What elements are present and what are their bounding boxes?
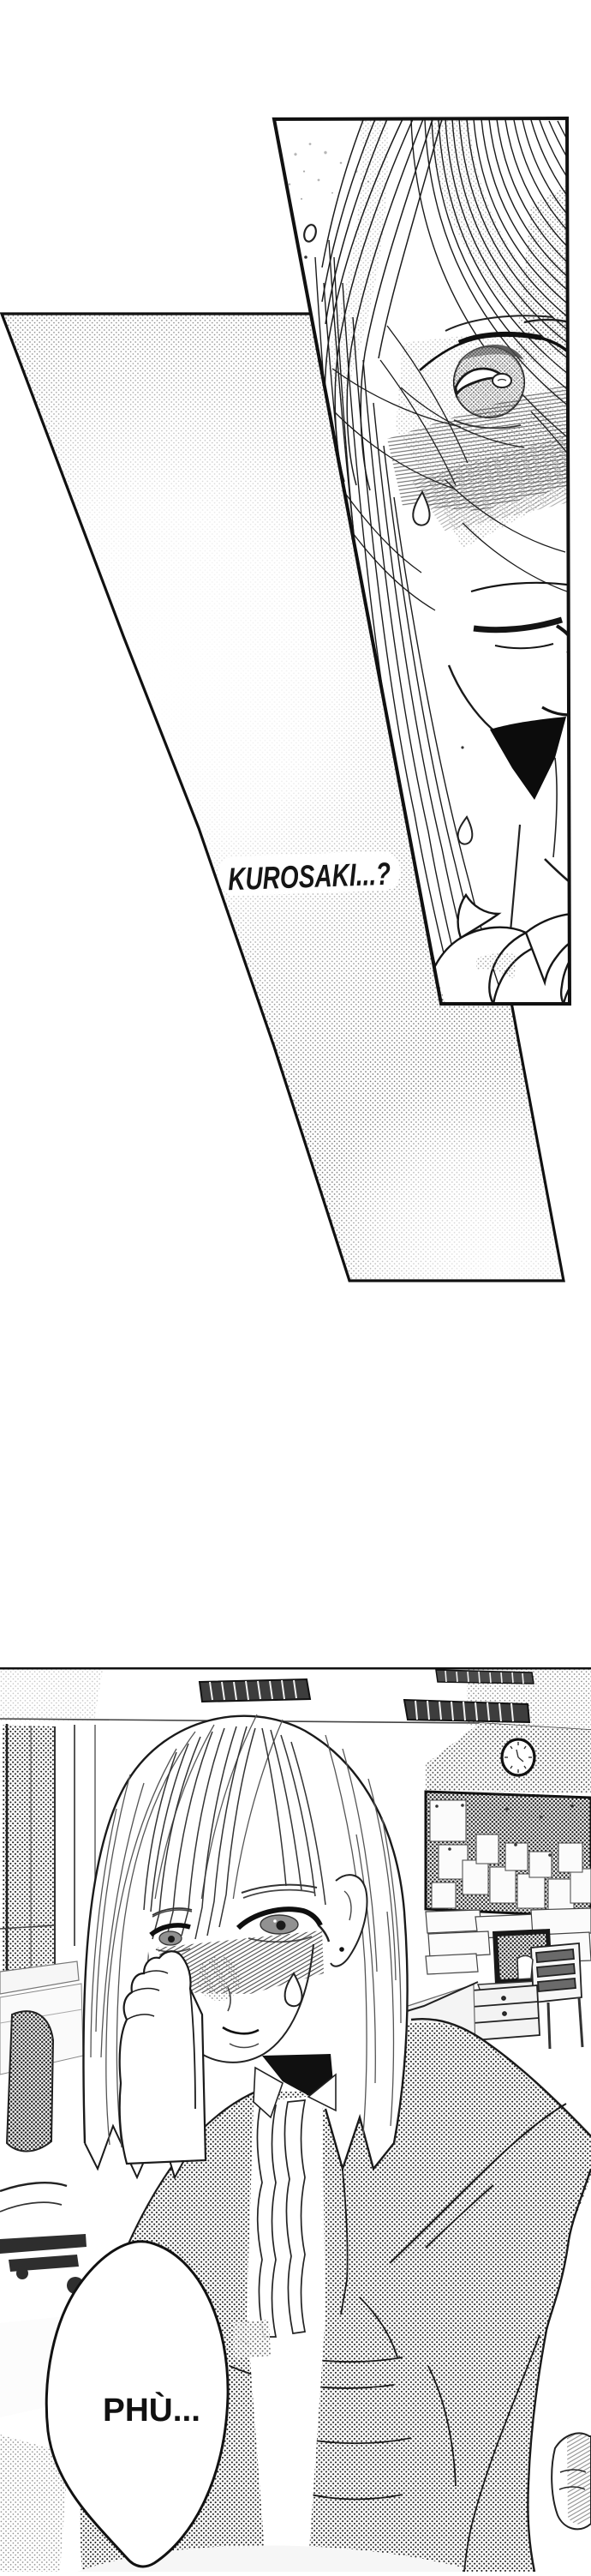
svg-text:PHÙ...: PHÙ... xyxy=(103,2391,200,2429)
svg-text:KUROSAKI...?: KUROSAKI...? xyxy=(227,856,391,898)
